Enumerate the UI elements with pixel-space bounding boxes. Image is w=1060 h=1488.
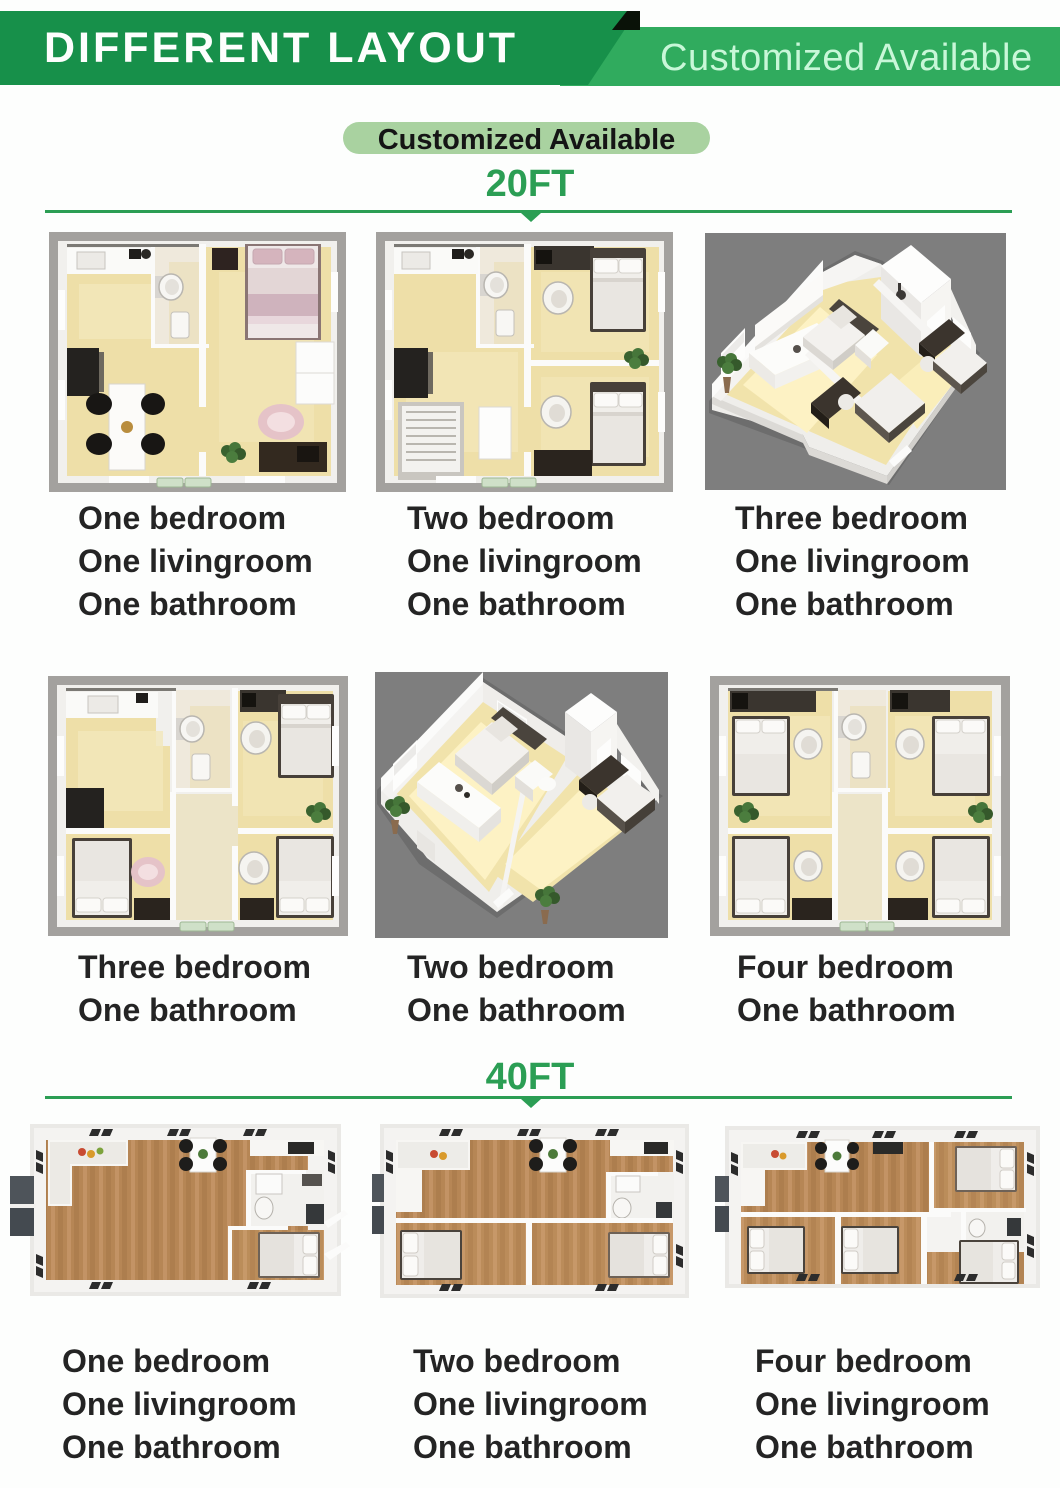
svg-text:DIFFERENT LAYOUT: DIFFERENT LAYOUT [44, 24, 518, 72]
svg-text:Customized Available: Customized Available [660, 37, 1033, 79]
